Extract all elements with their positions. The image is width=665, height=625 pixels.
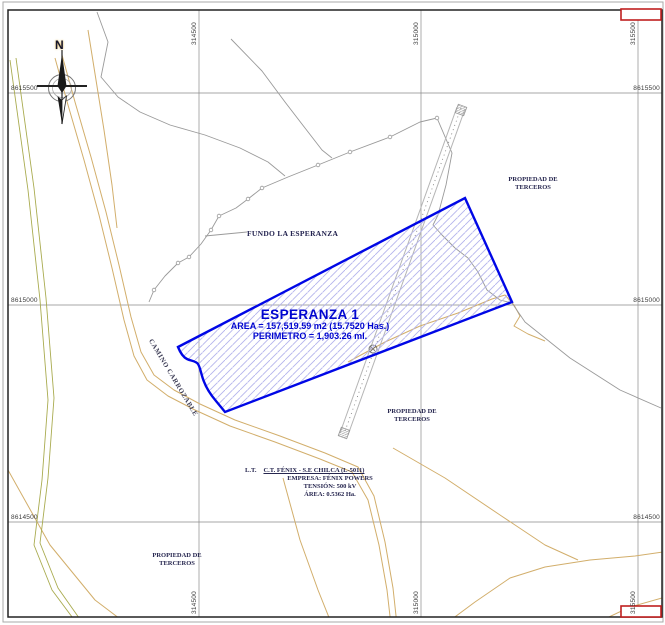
grid-label-northing-left-0: 8615500 <box>11 85 38 92</box>
owner-line1: PROPIEDAD DE <box>142 552 212 560</box>
grid-label-northing-left-1: 8615000 <box>11 297 38 304</box>
grid-label-northing-right-1: 8615000 <box>632 297 660 304</box>
transmission-note: L.T. C.T. FÉNIX - S.E CHILCA (L-5011) EM… <box>245 467 395 499</box>
north-label: N <box>55 38 64 52</box>
grid-label-easting-bottom-1: 315000 <box>413 591 420 614</box>
parcel-annotation: ESPERANZA 1 AREA = 157,519.59 m2 (15.752… <box>200 308 420 341</box>
lt-voltage: TENSIÓN: 500 kV <box>245 483 395 491</box>
propiedad-terceros-label-s: PROPIEDAD DE TERCEROS <box>377 408 447 424</box>
lt-name: C.T. FÉNIX - S.E CHILCA (L-5011) <box>263 467 364 475</box>
north-arrow <box>37 50 87 124</box>
propiedad-terceros-label-sw: PROPIEDAD DE TERCEROS <box>142 552 212 568</box>
propiedad-terceros-label-ne: PROPIEDAD DE TERCEROS <box>498 176 568 192</box>
lt-area: ÁREA: 0.5362 Ha. <box>245 491 395 499</box>
grid-label-northing-right-2: 8614500 <box>632 514 660 521</box>
grid-label-northing-left-2: 8614500 <box>11 514 38 521</box>
grid-label-easting-bottom-2: 315500 <box>630 591 637 614</box>
grid-label-easting-top-0: 314500 <box>191 22 198 45</box>
tower-symbol <box>338 427 350 439</box>
grid-label-easting-top-2: 315500 <box>630 22 637 45</box>
red-corner-marker-bottom <box>621 606 661 617</box>
survey-plan-page: N 314500 315000 315500 314500 315000 315… <box>0 0 665 625</box>
owner-line1: PROPIEDAD DE <box>498 176 568 184</box>
parcel-name: ESPERANZA 1 <box>200 308 420 322</box>
lt-company: EMPRESA: FÉNIX POWERS <box>245 475 395 483</box>
owner-line2: TERCEROS <box>498 184 568 192</box>
grid-label-easting-bottom-0: 314500 <box>191 591 198 614</box>
lt-prefix: L.T. <box>245 467 256 475</box>
owner-line1: PROPIEDAD DE <box>377 408 447 416</box>
grid-label-northing-right-0: 8615500 <box>632 85 660 92</box>
grid-label-easting-top-1: 315000 <box>413 22 420 45</box>
parcel-perimeter-label: PERIMETRO = 1,903.26 ml. <box>200 332 420 342</box>
owner-line2: TERCEROS <box>142 560 212 568</box>
owner-line2: TERCEROS <box>377 416 447 424</box>
tower-symbol <box>455 104 467 116</box>
red-corner-marker-top <box>621 9 661 20</box>
fundo-la-esperanza-label: FUNDO LA ESPERANZA <box>247 229 338 238</box>
